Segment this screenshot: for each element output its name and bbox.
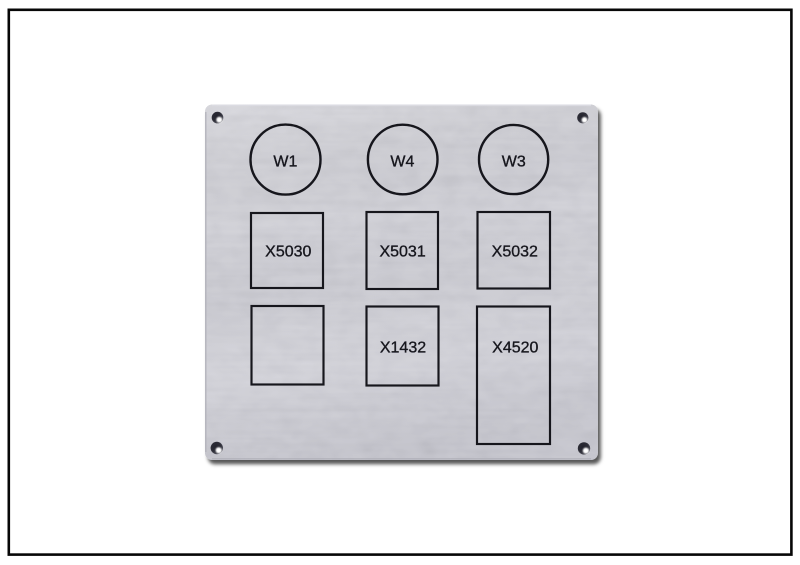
- svg-text:W1: W1: [273, 154, 297, 171]
- svg-text:W3: W3: [502, 154, 526, 171]
- svg-text:X5032: X5032: [492, 244, 538, 261]
- svg-text:X5031: X5031: [379, 244, 425, 261]
- svg-text:X5030: X5030: [265, 244, 311, 261]
- svg-text:X4520: X4520: [492, 339, 538, 356]
- svg-text:X1432: X1432: [380, 339, 426, 356]
- svg-text:W4: W4: [390, 154, 414, 171]
